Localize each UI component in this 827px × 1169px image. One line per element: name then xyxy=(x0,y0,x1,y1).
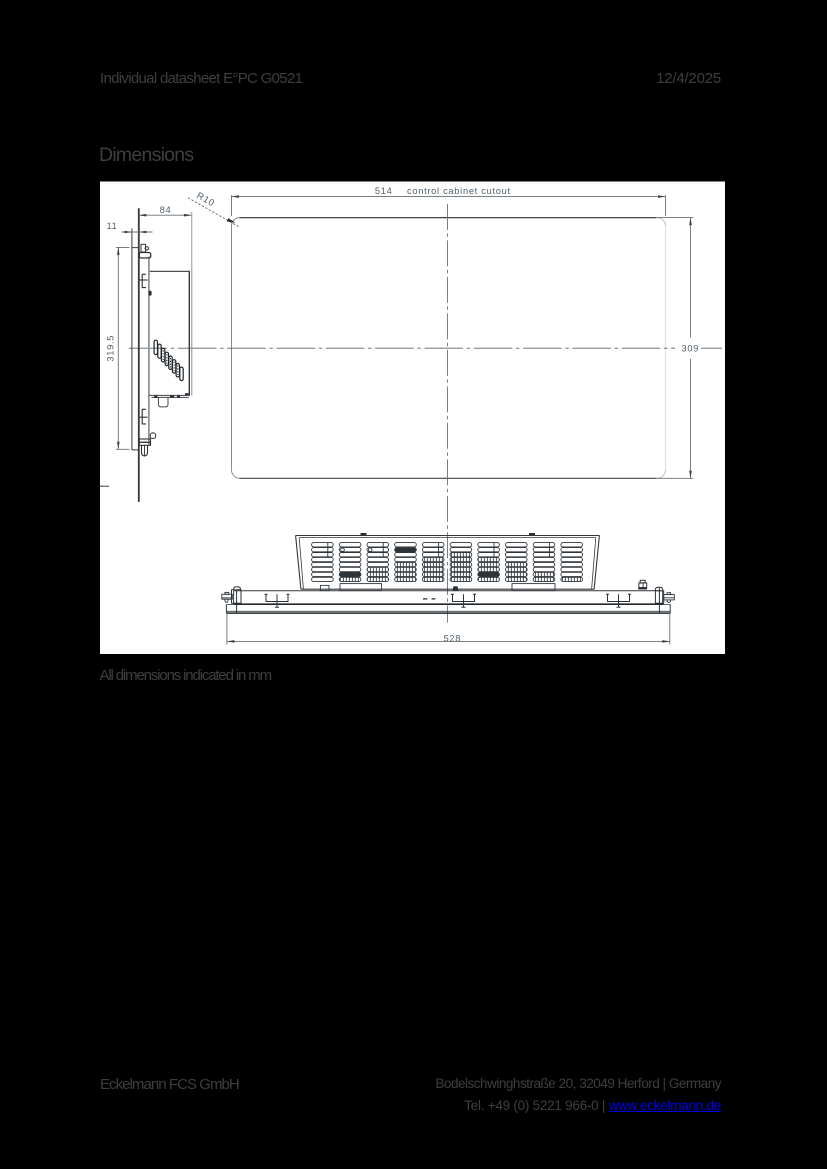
svg-text:309: 309 xyxy=(681,343,699,353)
svg-text:84: 84 xyxy=(160,205,172,215)
svg-text:11: 11 xyxy=(106,221,117,231)
svg-text:control cabinet cutout: control cabinet cutout xyxy=(407,186,511,196)
svg-text:319.5: 319.5 xyxy=(106,335,116,362)
svg-text:528: 528 xyxy=(443,633,461,643)
svg-text:514: 514 xyxy=(375,186,393,196)
